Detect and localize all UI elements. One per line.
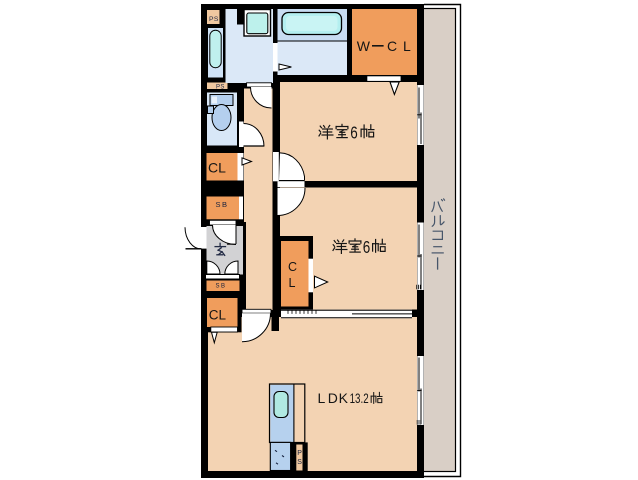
svg-text:SB: SB	[216, 284, 227, 290]
svg-text:6: 6	[363, 238, 371, 257]
svg-text:PS: PS	[216, 84, 225, 90]
svg-text:L: L	[318, 390, 326, 406]
svg-text:13.2: 13.2	[350, 390, 369, 406]
svg-text:P: P	[297, 450, 302, 457]
svg-text:SB: SB	[216, 200, 229, 209]
svg-text:PS: PS	[209, 16, 219, 23]
svg-text:W: W	[357, 38, 371, 54]
svg-text:S: S	[297, 459, 302, 466]
svg-text:CL: CL	[208, 159, 226, 175]
svg-text:K: K	[339, 390, 349, 406]
svg-text:6: 6	[350, 124, 358, 143]
svg-text:C: C	[288, 260, 297, 274]
svg-text:D: D	[328, 390, 338, 406]
svg-text:CL: CL	[209, 307, 227, 322]
svg-text:C: C	[387, 38, 397, 54]
svg-text:L: L	[403, 38, 411, 54]
svg-text:L: L	[289, 276, 296, 290]
